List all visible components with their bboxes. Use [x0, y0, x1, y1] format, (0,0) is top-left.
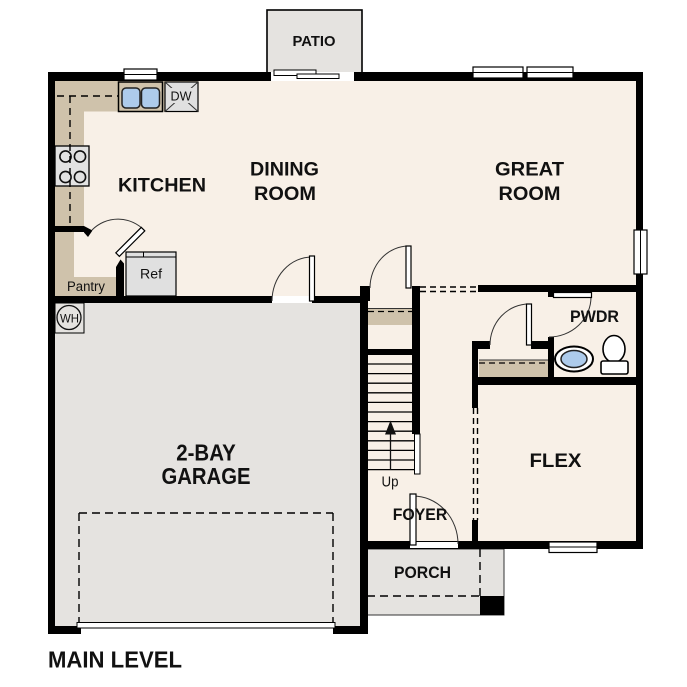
svg-text:PORCH: PORCH [394, 564, 451, 582]
svg-text:Pantry: Pantry [67, 279, 105, 294]
svg-text:FOYER: FOYER [393, 506, 448, 524]
svg-text:Ref: Ref [140, 267, 162, 282]
svg-text:KITCHEN: KITCHEN [118, 176, 206, 197]
svg-text:WH: WH [60, 312, 79, 326]
svg-text:PATIO: PATIO [293, 33, 336, 50]
svg-text:ROOM: ROOM [499, 184, 561, 205]
svg-text:DW: DW [171, 90, 192, 104]
svg-text:ROOM: ROOM [254, 184, 316, 205]
svg-text:Up: Up [382, 475, 399, 491]
svg-text:PWDR: PWDR [570, 308, 619, 326]
svg-text:DINING: DINING [250, 160, 319, 181]
svg-text:GREAT: GREAT [495, 160, 564, 181]
svg-text:GARAGE: GARAGE [162, 463, 251, 489]
svg-text:2-BAY: 2-BAY [176, 440, 236, 466]
svg-text:FLEX: FLEX [530, 451, 582, 472]
svg-text:MAIN LEVEL: MAIN LEVEL [48, 647, 182, 673]
